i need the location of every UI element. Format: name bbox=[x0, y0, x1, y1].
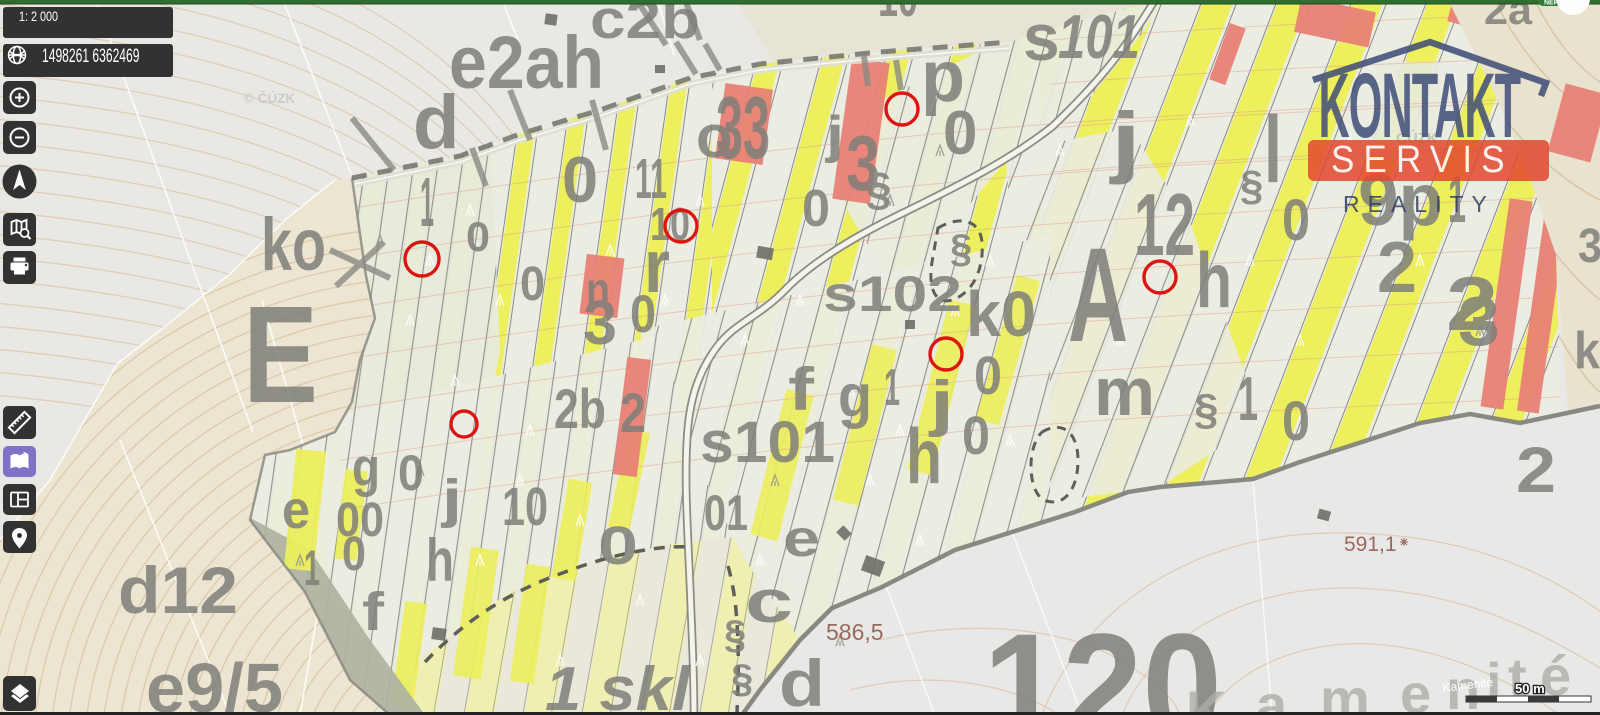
svg-text:k: k bbox=[1574, 322, 1600, 380]
svg-text:12: 12 bbox=[1134, 175, 1195, 274]
svg-text:e: e bbox=[1400, 662, 1431, 715]
svg-text:01: 01 bbox=[704, 485, 748, 541]
svg-text:0: 0 bbox=[466, 213, 490, 260]
svg-text:586,5: 586,5 bbox=[826, 619, 884, 645]
svg-text:§: § bbox=[724, 613, 746, 657]
svg-text:0: 0 bbox=[342, 528, 366, 581]
svg-text:l: l bbox=[1264, 97, 1282, 203]
svg-text:2: 2 bbox=[1516, 434, 1556, 506]
svg-text:2b: 2b bbox=[554, 377, 606, 440]
svg-text:0: 0 bbox=[1282, 389, 1310, 452]
svg-text:j: j bbox=[1108, 96, 1141, 185]
svg-text:33: 33 bbox=[716, 78, 770, 177]
svg-text:§: § bbox=[950, 227, 972, 271]
svg-text:j: j bbox=[441, 469, 462, 529]
svg-text:2: 2 bbox=[620, 381, 646, 444]
svg-text:E: E bbox=[243, 278, 318, 432]
svg-text:0: 0 bbox=[598, 516, 638, 576]
svg-text:REALITY: REALITY bbox=[1343, 191, 1495, 217]
svg-text:e: e bbox=[282, 480, 310, 540]
svg-text:10: 10 bbox=[502, 477, 548, 537]
svg-text:j: j bbox=[825, 106, 844, 164]
svg-text:d: d bbox=[413, 80, 459, 165]
svg-text:c: c bbox=[745, 568, 793, 635]
svg-text:2a: 2a bbox=[1484, 0, 1533, 33]
svg-text:0: 0 bbox=[974, 346, 1002, 406]
svg-text:g: g bbox=[838, 362, 872, 429]
svg-text:e2ah: e2ah bbox=[449, 21, 604, 104]
svg-text:a: a bbox=[1256, 673, 1288, 715]
svg-text:3: 3 bbox=[1578, 220, 1600, 273]
svg-text:d: d bbox=[779, 646, 825, 715]
svg-text:K: K bbox=[1186, 679, 1226, 715]
svg-text:3: 3 bbox=[1458, 282, 1500, 360]
svg-text:0: 0 bbox=[962, 406, 990, 466]
svg-text:0: 0 bbox=[562, 143, 598, 216]
svg-text:k0: k0 bbox=[966, 278, 1036, 350]
svg-text:1: 1 bbox=[884, 359, 900, 417]
svg-text:A: A bbox=[1068, 221, 1128, 370]
svg-text:101: 101 bbox=[1058, 3, 1140, 72]
svg-text:h: h bbox=[426, 527, 454, 594]
svg-text:0: 0 bbox=[520, 258, 545, 311]
svg-text:f: f bbox=[362, 582, 385, 642]
svg-text:© ČÚZK: © ČÚZK bbox=[244, 91, 295, 106]
svg-text:c2b: c2b bbox=[590, 0, 700, 50]
svg-text:s101: s101 bbox=[700, 410, 835, 475]
svg-text:n: n bbox=[586, 264, 610, 317]
svg-text:SERVIS: SERVIS bbox=[1331, 138, 1514, 181]
svg-text:0: 0 bbox=[943, 99, 977, 168]
svg-text:1: 2 000: 1: 2 000 bbox=[19, 9, 58, 24]
svg-text:s: s bbox=[1023, 0, 1060, 74]
svg-text:§: § bbox=[731, 657, 753, 701]
svg-text:0: 0 bbox=[802, 180, 830, 238]
svg-text:g: g bbox=[352, 438, 380, 498]
svg-text:1: 1 bbox=[420, 163, 434, 241]
svg-text:591,1: 591,1 bbox=[1344, 533, 1397, 556]
svg-text:e9/5: e9/5 bbox=[146, 649, 283, 715]
svg-text:0: 0 bbox=[630, 285, 656, 344]
svg-text:§: § bbox=[1240, 162, 1263, 209]
svg-text:0: 0 bbox=[1282, 188, 1310, 253]
svg-text:h: h bbox=[906, 412, 942, 500]
svg-text:d12: d12 bbox=[118, 553, 238, 627]
svg-text:1: 1 bbox=[1238, 365, 1258, 434]
svg-text:s102: s102 bbox=[823, 266, 962, 322]
svg-text:1: 1 bbox=[304, 540, 320, 596]
svg-text:e: e bbox=[783, 510, 820, 568]
svg-text:50 m: 50 m bbox=[1515, 681, 1545, 696]
svg-text:m: m bbox=[1320, 667, 1370, 715]
svg-text:1 skl: 1 skl bbox=[545, 655, 692, 715]
svg-text:1498261 6362469: 1498261 6362469 bbox=[42, 45, 139, 67]
svg-text:ko: ko bbox=[261, 203, 326, 286]
svg-text:h: h bbox=[1196, 236, 1232, 324]
svg-text:0: 0 bbox=[398, 445, 424, 501]
svg-text:§: § bbox=[866, 163, 892, 215]
svg-text:§: § bbox=[1194, 385, 1218, 434]
